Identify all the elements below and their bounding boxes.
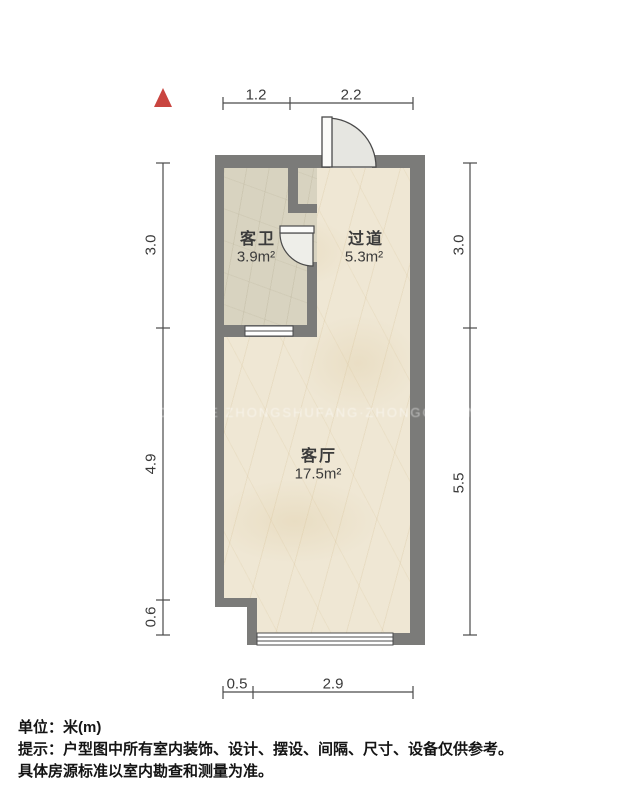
plan-linework [0,0,636,800]
room-area-hallway: 5.3m² [345,249,383,266]
footer-unit-label: 单位：米(m) [18,716,101,737]
room-area-bathroom: 3.9m² [237,249,275,266]
dim-label-left-2: 4.9 [143,454,160,475]
dim-label-right-1: 3.0 [451,235,468,256]
floorplan-canvas: HOWLIVE ZHONGSHUFANG·ZHONGCHUANG JL 1.2 … [0,0,636,800]
bathroom-door-swing-arc [280,233,313,266]
entry-door-swing-arc [327,118,376,167]
watermark-text: HOWLIVE ZHONGSHUFANG·ZHONGCHUANG JL [140,405,520,420]
room-name-livingroom: 客厅 [301,442,337,466]
dim-label-left-1: 3.0 [143,235,160,256]
room-name-hallway: 过道 [348,225,384,249]
entry-door [322,117,376,167]
footer-disclaimer-line1: 提示：户型图中所有室内装饰、设计、摆设、间隔、尺寸、设备仅供参考。 [18,738,513,759]
room-area-livingroom: 17.5m² [295,466,342,483]
dim-label-bottom-1: 0.5 [227,676,248,693]
dimension-lines [156,97,477,699]
bathroom-door [280,226,314,266]
dim-label-bottom-2: 2.9 [323,676,344,693]
dim-label-top-1: 1.2 [246,87,267,104]
entry-door-leaf [322,117,332,167]
living-room-window [257,633,393,645]
dim-line-bottom [223,686,413,699]
footer-disclaimer-line2: 具体房源标准以室内勘查和测量为准。 [18,760,273,781]
dim-label-left-3: 0.6 [143,607,160,628]
bathroom-door-leaf [280,226,314,233]
dim-label-top-2: 2.2 [341,87,362,104]
bathroom-window [245,326,293,336]
dim-label-right-2: 5.5 [451,473,468,494]
room-name-bathroom: 客卫 [240,225,276,249]
